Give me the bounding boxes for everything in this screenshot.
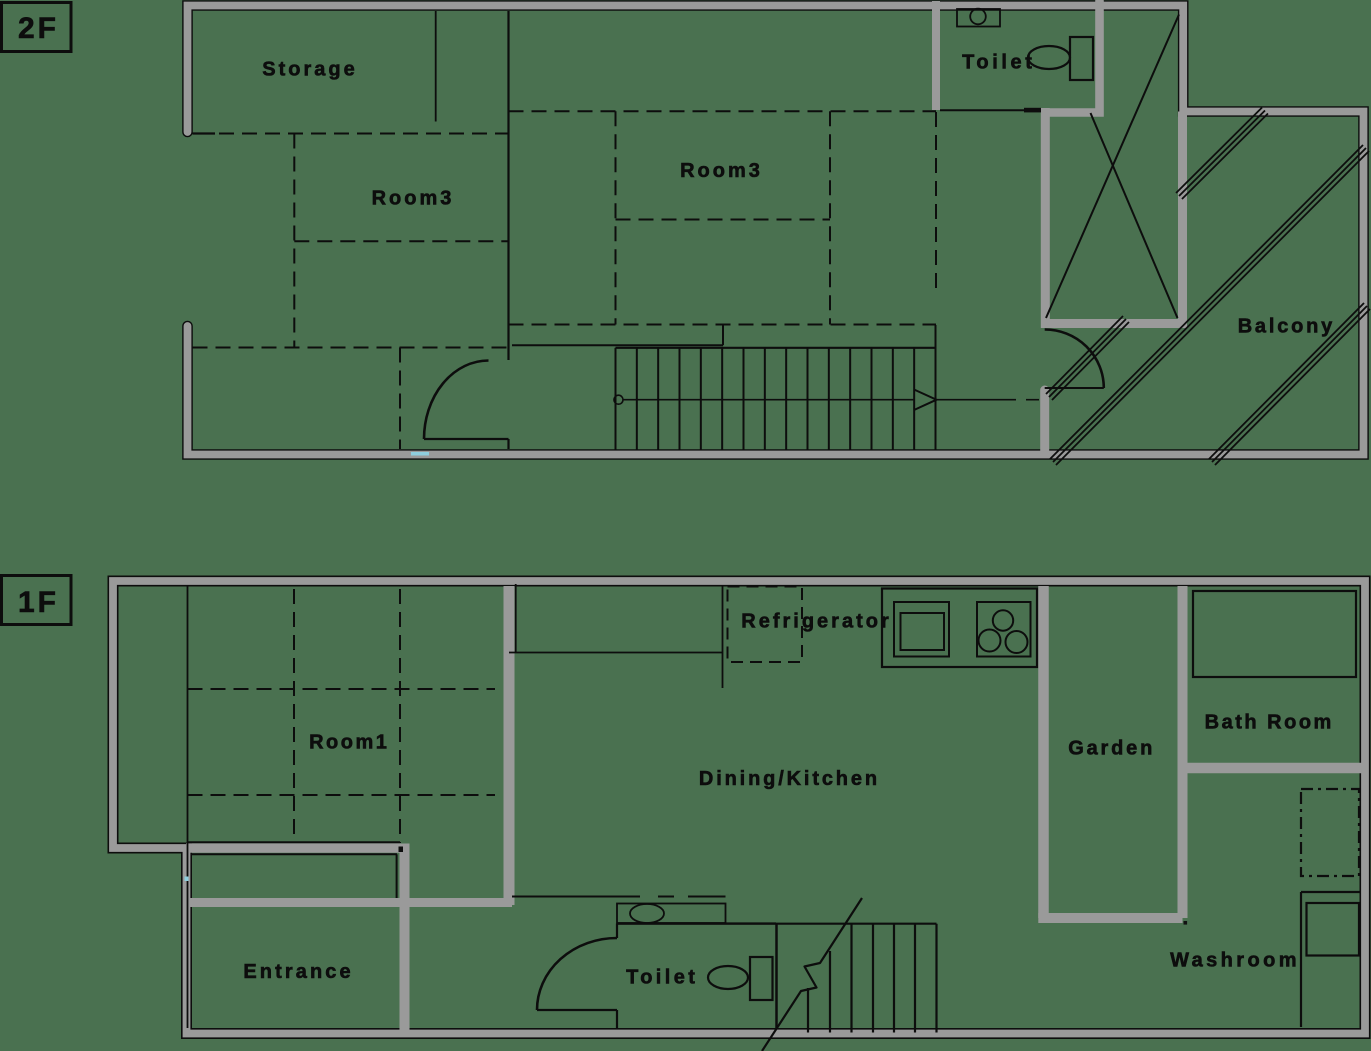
- svg-text:Balcony: Balcony: [1238, 316, 1335, 338]
- svg-text:Toilet: Toilet: [962, 52, 1035, 74]
- svg-text:Storage: Storage: [262, 59, 357, 81]
- svg-text:Room3: Room3: [680, 160, 763, 182]
- svg-text:2F: 2F: [18, 12, 59, 45]
- svg-text:Entrance: Entrance: [243, 961, 353, 983]
- svg-text:1F: 1F: [18, 586, 59, 619]
- svg-text:Dining/Kitchen: Dining/Kitchen: [699, 768, 880, 790]
- svg-text:Bath Room: Bath Room: [1205, 712, 1334, 734]
- svg-text:Room3: Room3: [372, 188, 455, 210]
- svg-text:Garden: Garden: [1068, 738, 1155, 760]
- svg-text:Refrigerator: Refrigerator: [741, 611, 891, 633]
- svg-text:Toilet: Toilet: [626, 967, 698, 989]
- svg-text:Room1: Room1: [309, 732, 389, 754]
- svg-text:Washroom: Washroom: [1170, 950, 1300, 972]
